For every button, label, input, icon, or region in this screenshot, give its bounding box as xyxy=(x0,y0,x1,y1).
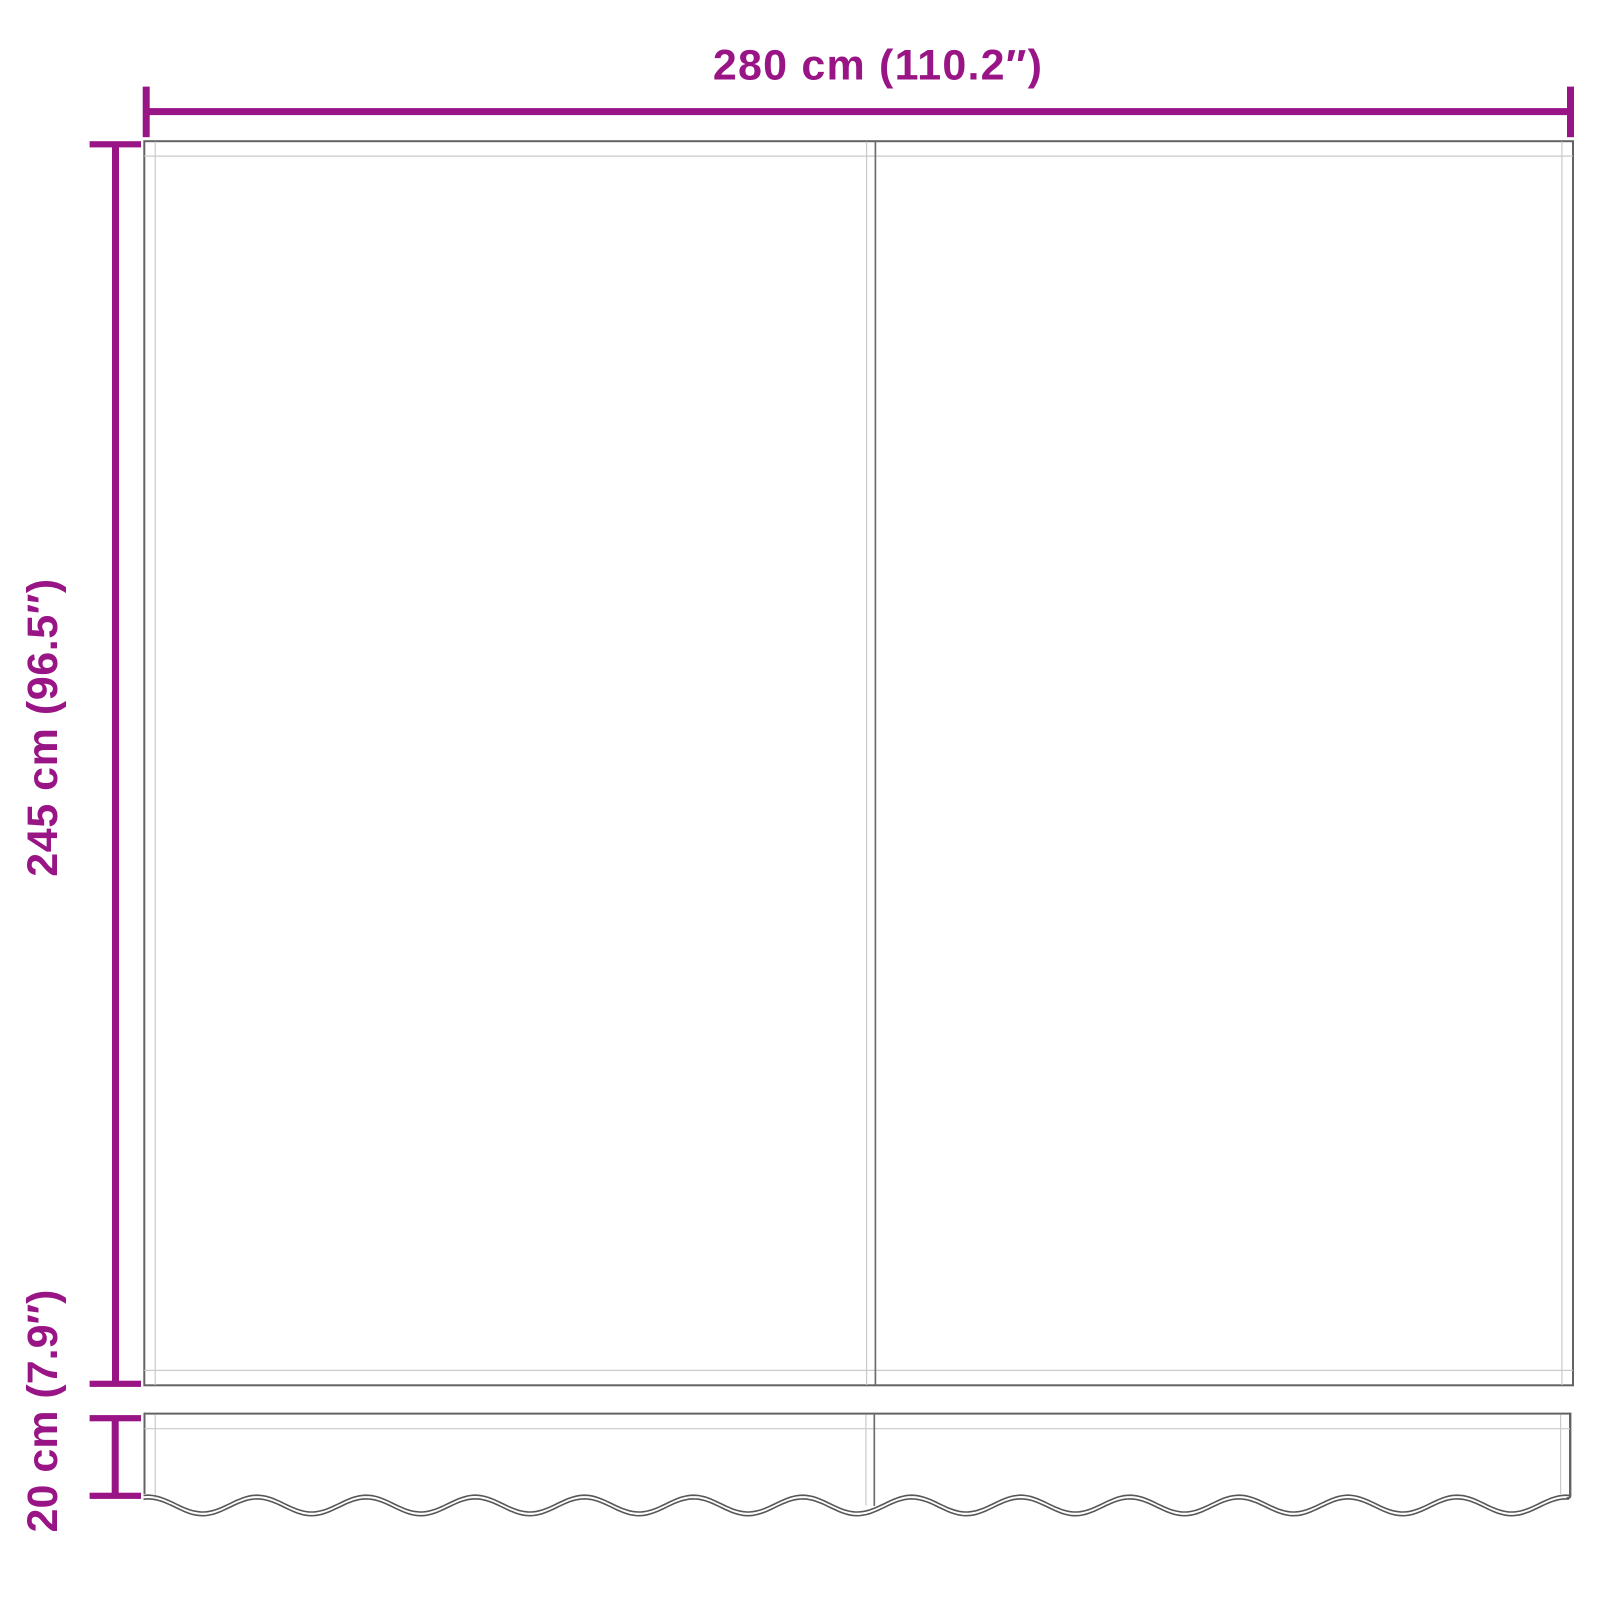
svg-text:245 cm (96.5″): 245 cm (96.5″) xyxy=(19,578,67,876)
svg-text:20 cm (7.9″): 20 cm (7.9″) xyxy=(19,1290,67,1533)
svg-text:280 cm (110.2″): 280 cm (110.2″) xyxy=(713,42,1043,90)
